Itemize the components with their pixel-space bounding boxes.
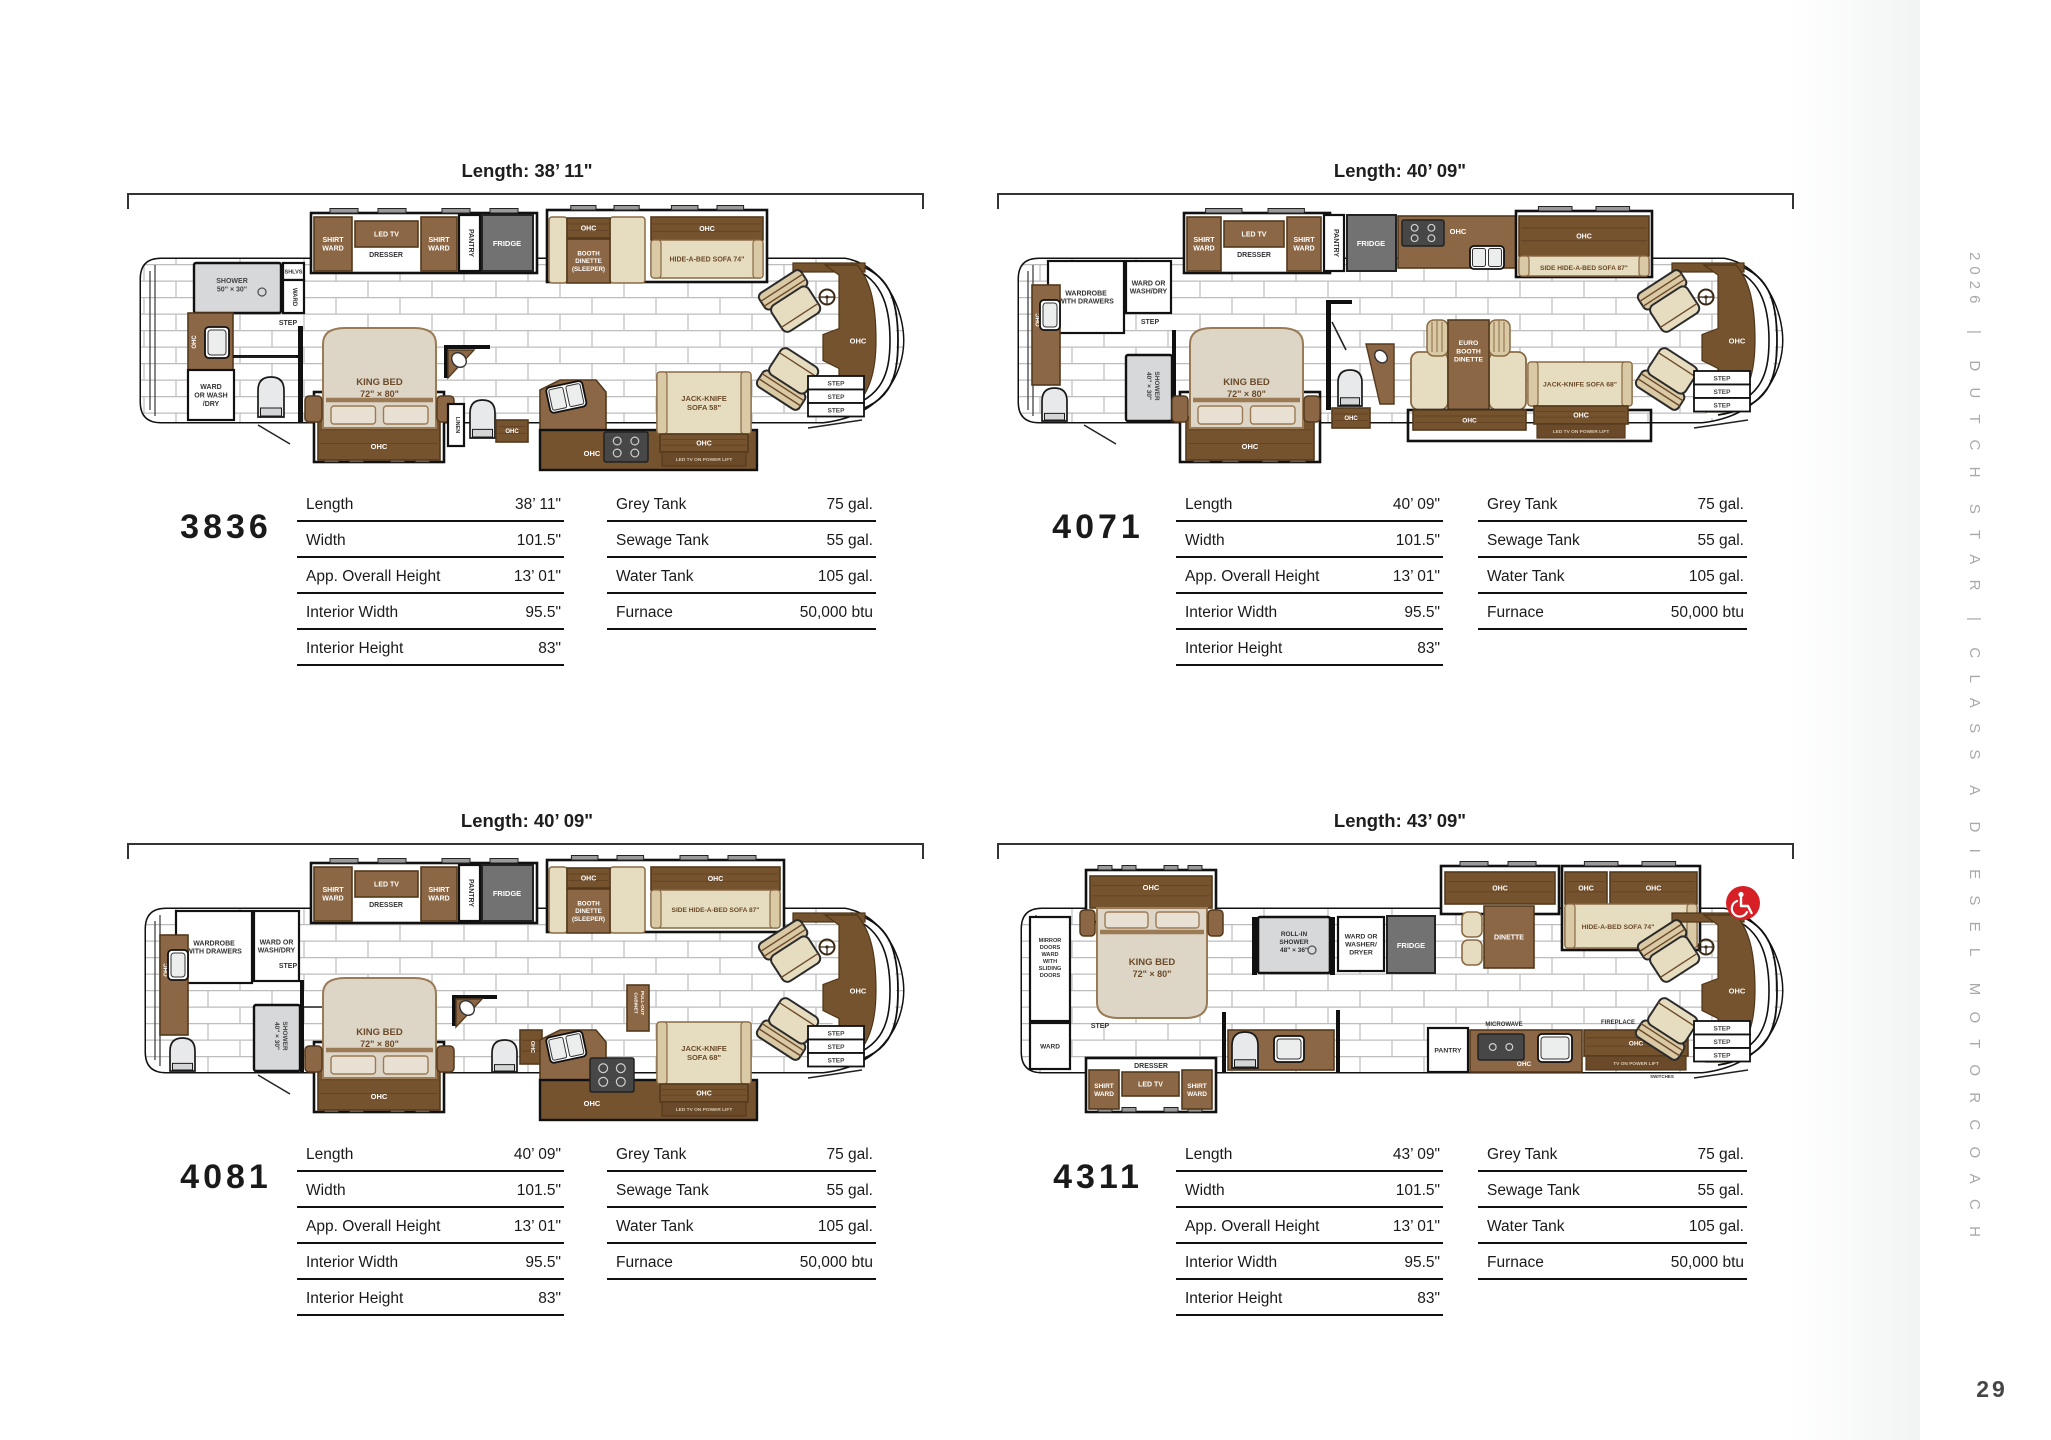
- svg-text:BOOTH: BOOTH: [1456, 348, 1481, 355]
- svg-text:OHC: OHC: [1729, 337, 1746, 346]
- svg-text:SHIRT: SHIRT: [1094, 1083, 1114, 1090]
- svg-text:SHIRT: SHIRT: [1294, 237, 1316, 244]
- svg-text:LED TV ON POWER LIFT: LED TV ON POWER LIFT: [676, 1107, 733, 1113]
- svg-text:DRESSER: DRESSER: [369, 902, 403, 909]
- svg-text:DRYER: DRYER: [1349, 949, 1373, 956]
- svg-text:OHC: OHC: [1576, 234, 1592, 241]
- svg-text:OHC: OHC: [505, 429, 519, 435]
- svg-text:SIDE HIDE-A-BED SOFA 87": SIDE HIDE-A-BED SOFA 87": [1540, 265, 1628, 272]
- svg-text:STEP: STEP: [828, 1031, 846, 1038]
- svg-text:KING BED: KING BED: [1129, 957, 1176, 968]
- svg-text:OR WASH: OR WASH: [194, 392, 227, 399]
- svg-text:STEP: STEP: [1091, 1023, 1110, 1030]
- svg-text:JACK-KNIFE: JACK-KNIFE: [681, 1044, 726, 1053]
- svg-text:WARD: WARD: [1187, 1091, 1207, 1098]
- svg-text:SHOWER: SHOWER: [1279, 939, 1309, 946]
- svg-text:72" × 80": 72" × 80": [360, 1039, 399, 1049]
- svg-text:SLIDING: SLIDING: [1039, 966, 1062, 972]
- svg-text:WARD OR: WARD OR: [1345, 933, 1378, 940]
- svg-text:48" × 36": 48" × 36": [1280, 947, 1308, 954]
- svg-text:STEP: STEP: [828, 381, 846, 388]
- svg-text:OHC: OHC: [1629, 1040, 1644, 1047]
- svg-text:PANTRY: PANTRY: [1332, 229, 1339, 257]
- svg-text:LED TV: LED TV: [1242, 231, 1267, 238]
- svg-text:DRESSER: DRESSER: [369, 252, 403, 259]
- svg-text:LED TV: LED TV: [374, 881, 399, 888]
- svg-text:WARD: WARD: [1040, 1043, 1060, 1050]
- svg-text:BOOTH: BOOTH: [577, 250, 600, 257]
- svg-text:KING BED: KING BED: [1223, 377, 1270, 388]
- svg-text:PANTRY: PANTRY: [1434, 1047, 1462, 1054]
- svg-text:MICROWAVE: MICROWAVE: [1485, 1022, 1522, 1028]
- svg-text:WARD OR: WARD OR: [1132, 280, 1166, 287]
- svg-text:OHC: OHC: [1242, 442, 1259, 451]
- svg-text:SOFA 68": SOFA 68": [687, 1053, 722, 1062]
- svg-text:LINEN: LINEN: [454, 417, 460, 434]
- svg-text:FRIDGE: FRIDGE: [493, 889, 521, 898]
- svg-text:SHLVS: SHLVS: [285, 269, 303, 275]
- svg-text:LED TV: LED TV: [1138, 1081, 1163, 1088]
- svg-text:OHC: OHC: [1344, 416, 1358, 422]
- svg-text:STEP: STEP: [828, 1058, 846, 1065]
- svg-text:WITH DRAWERS: WITH DRAWERS: [1058, 299, 1114, 306]
- svg-text:PANTRY: PANTRY: [467, 229, 474, 257]
- svg-text:/DRY: /DRY: [203, 401, 220, 408]
- svg-text:SWITCHES: SWITCHES: [1650, 1074, 1674, 1079]
- svg-text:STEP: STEP: [1714, 1053, 1732, 1060]
- svg-text:40" × 30": 40" × 30": [1145, 372, 1152, 400]
- svg-text:OHC: OHC: [581, 876, 597, 883]
- svg-text:BOOTH: BOOTH: [577, 900, 600, 907]
- svg-text:OHC: OHC: [1450, 227, 1467, 236]
- svg-text:OHC: OHC: [371, 1092, 388, 1101]
- svg-text:OHC: OHC: [1729, 987, 1746, 996]
- svg-text:WARD: WARD: [1094, 1091, 1114, 1098]
- svg-text:CABINET: CABINET: [633, 992, 639, 1013]
- svg-text:STEP: STEP: [279, 320, 298, 327]
- svg-text:WASHER/: WASHER/: [1345, 941, 1377, 948]
- svg-text:SHIRT: SHIRT: [323, 237, 345, 244]
- svg-text:HIDE-A-BED SOFA 74": HIDE-A-BED SOFA 74": [669, 256, 744, 263]
- svg-text:WARD: WARD: [1193, 246, 1214, 253]
- svg-text:OHC: OHC: [529, 1041, 535, 1053]
- svg-text:FIREPLACE: FIREPLACE: [1601, 1020, 1635, 1026]
- svg-text:OHC: OHC: [1492, 886, 1508, 893]
- svg-text:OHC: OHC: [1143, 883, 1160, 892]
- svg-text:72" × 80": 72" × 80": [1133, 969, 1172, 979]
- svg-text:WARD: WARD: [322, 896, 343, 903]
- svg-text:DOORS: DOORS: [1040, 973, 1061, 979]
- svg-text:OHC: OHC: [584, 1099, 601, 1108]
- svg-text:EURO: EURO: [1459, 340, 1479, 347]
- svg-text:OHC: OHC: [1462, 417, 1477, 424]
- svg-text:STEP: STEP: [1714, 1039, 1732, 1046]
- svg-text:JACK-KNIFE: JACK-KNIFE: [681, 394, 726, 403]
- svg-text:40" × 30": 40" × 30": [273, 1022, 280, 1050]
- svg-text:OHC: OHC: [708, 876, 724, 883]
- svg-text:STEP: STEP: [1714, 1026, 1732, 1033]
- svg-text:WARD OR: WARD OR: [260, 939, 294, 946]
- svg-text:WARDROBE: WARDROBE: [1065, 290, 1107, 297]
- svg-text:JACK-KNIFE SOFA 68": JACK-KNIFE SOFA 68": [1543, 381, 1617, 388]
- svg-text:WASH/DRY: WASH/DRY: [1130, 289, 1168, 296]
- svg-text:FRIDGE: FRIDGE: [1357, 239, 1385, 248]
- svg-text:WARDROBE: WARDROBE: [193, 940, 235, 947]
- svg-text:DINETTE: DINETTE: [1454, 357, 1484, 364]
- svg-text:LED TV ON POWER LIFT: LED TV ON POWER LIFT: [676, 457, 733, 463]
- svg-text:STEP: STEP: [1714, 403, 1732, 410]
- svg-text:DINETTE: DINETTE: [1494, 934, 1524, 941]
- svg-text:DINETTE: DINETTE: [575, 258, 601, 265]
- svg-text:WITH: WITH: [1043, 959, 1057, 965]
- svg-text:OHC: OHC: [1646, 886, 1662, 893]
- svg-text:LED TV: LED TV: [374, 231, 399, 238]
- svg-text:OHC: OHC: [699, 226, 715, 233]
- svg-text:WARD: WARD: [428, 246, 449, 253]
- svg-text:TV ON POWER LIFT: TV ON POWER LIFT: [1613, 1061, 1659, 1067]
- svg-text:OHC: OHC: [850, 337, 867, 346]
- svg-text:SHIRT: SHIRT: [429, 237, 451, 244]
- svg-text:ROLL-IN: ROLL-IN: [1281, 931, 1308, 938]
- svg-text:(SLEEPER): (SLEEPER): [572, 266, 605, 273]
- svg-text:SIDE HIDE-A-BED SOFA 87": SIDE HIDE-A-BED SOFA 87": [672, 907, 760, 914]
- svg-text:SOFA 58": SOFA 58": [687, 403, 722, 412]
- svg-text:FRIDGE: FRIDGE: [1397, 941, 1425, 950]
- svg-text:MIRROR: MIRROR: [1039, 938, 1062, 944]
- svg-text:WASH/DRY: WASH/DRY: [258, 948, 296, 955]
- svg-text:WARD: WARD: [428, 896, 449, 903]
- svg-text:SHIRT: SHIRT: [1194, 237, 1216, 244]
- svg-text:WARD: WARD: [322, 246, 343, 253]
- svg-text:SHOWER: SHOWER: [281, 1021, 288, 1051]
- svg-text:OHC: OHC: [371, 442, 388, 451]
- svg-text:STEP: STEP: [828, 408, 846, 415]
- svg-text:DOORS: DOORS: [1040, 945, 1061, 951]
- svg-text:SHIRT: SHIRT: [1187, 1083, 1207, 1090]
- svg-text:OHC: OHC: [1578, 886, 1594, 893]
- svg-text:50" × 30": 50" × 30": [217, 287, 247, 294]
- svg-text:DRESSER: DRESSER: [1134, 1063, 1168, 1070]
- svg-text:STEP: STEP: [828, 394, 846, 401]
- svg-text:OHC: OHC: [581, 226, 597, 233]
- svg-text:SHIRT: SHIRT: [323, 887, 345, 894]
- svg-text:WARD: WARD: [1041, 952, 1058, 958]
- svg-text:OHC: OHC: [192, 335, 198, 349]
- svg-text:OHC: OHC: [584, 449, 601, 458]
- svg-text:SHOWER: SHOWER: [1153, 371, 1160, 401]
- svg-text:OHC: OHC: [696, 441, 712, 448]
- svg-text:STEP: STEP: [828, 1044, 846, 1051]
- svg-text:WARD: WARD: [1293, 246, 1314, 253]
- svg-text:KING BED: KING BED: [356, 1027, 403, 1038]
- svg-text:DINETTE: DINETTE: [575, 908, 601, 915]
- svg-text:PULL-OUT: PULL-OUT: [639, 991, 645, 1015]
- svg-text:SHIRT: SHIRT: [429, 887, 451, 894]
- svg-text:HIDE-A-BED SOFA 74": HIDE-A-BED SOFA 74": [1582, 924, 1655, 931]
- svg-text:72" × 80": 72" × 80": [360, 389, 399, 399]
- svg-text:PANTRY: PANTRY: [467, 879, 474, 907]
- svg-text:STEP: STEP: [1714, 389, 1732, 396]
- svg-text:WITH DRAWERS: WITH DRAWERS: [186, 949, 242, 956]
- svg-text:OHC: OHC: [850, 987, 867, 996]
- svg-text:STEP: STEP: [1141, 319, 1160, 326]
- svg-text:LED TV ON POWER LIFT: LED TV ON POWER LIFT: [1553, 429, 1610, 435]
- svg-text:STEP: STEP: [279, 963, 298, 970]
- svg-text:72" × 80": 72" × 80": [1227, 389, 1266, 399]
- svg-text:FRIDGE: FRIDGE: [493, 239, 521, 248]
- svg-text:KING BED: KING BED: [356, 377, 403, 388]
- svg-text:OHC: OHC: [1573, 413, 1589, 420]
- svg-text:OHC: OHC: [1517, 1061, 1532, 1068]
- svg-text:(SLEEPER): (SLEEPER): [572, 916, 605, 923]
- svg-text:STEP: STEP: [1714, 376, 1732, 383]
- svg-text:DRESSER: DRESSER: [1237, 252, 1271, 259]
- svg-text:WARD: WARD: [200, 384, 221, 391]
- svg-text:OHC: OHC: [696, 1091, 712, 1098]
- svg-text:SHOWER: SHOWER: [216, 278, 248, 285]
- svg-text:WARD: WARD: [291, 288, 297, 307]
